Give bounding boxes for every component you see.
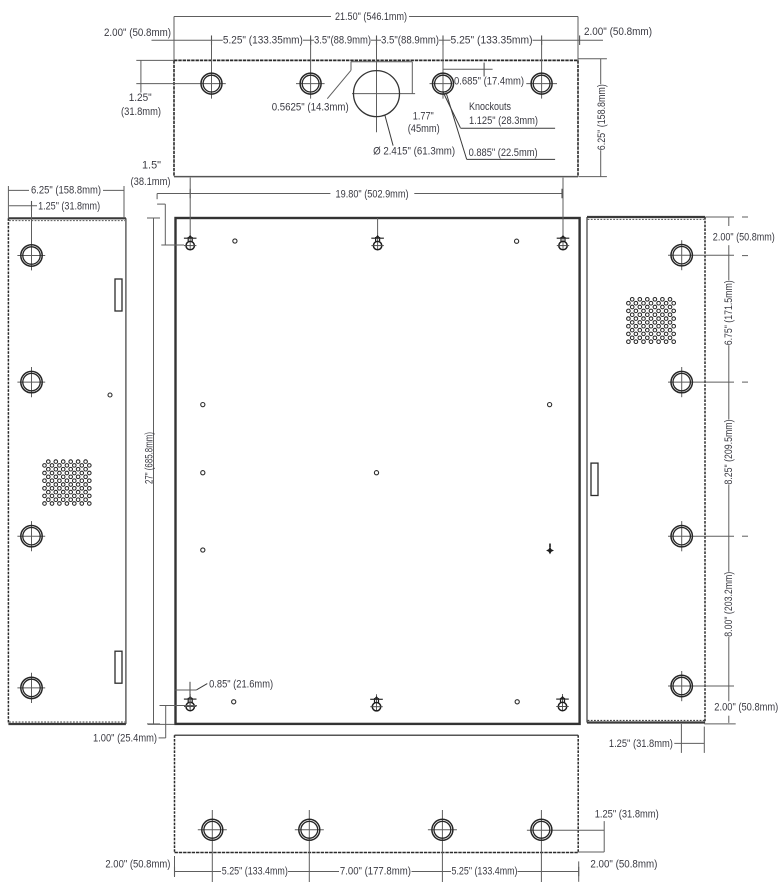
svg-text:5.25" (133.35mm): 5.25" (133.35mm) [451, 34, 533, 46]
svg-text:8.00" (203.2mm): 8.00" (203.2mm) [723, 572, 735, 637]
svg-text:5.25" (133.35mm): 5.25" (133.35mm) [223, 35, 303, 47]
svg-text:6.75" (171.5mm): 6.75" (171.5mm) [723, 280, 735, 345]
svg-text:(45mm): (45mm) [408, 123, 440, 135]
svg-text:0.5625" (14.3mm): 0.5625" (14.3mm) [272, 101, 349, 113]
svg-text:1.25" (31.8mm): 1.25" (31.8mm) [609, 738, 673, 750]
svg-text:7.00" (177.8mm): 7.00" (177.8mm) [340, 865, 411, 877]
svg-text:5.25" (133.4mm): 5.25" (133.4mm) [222, 865, 288, 877]
svg-text:0.85" (21.6mm): 0.85" (21.6mm) [209, 678, 273, 690]
svg-text:(31.8mm): (31.8mm) [121, 106, 161, 118]
svg-text:8.25" (209.5mm): 8.25" (209.5mm) [723, 420, 735, 485]
svg-text:6.25" (158.8mm): 6.25" (158.8mm) [31, 185, 101, 197]
svg-text:5.25" (133.4mm): 5.25" (133.4mm) [452, 865, 518, 877]
svg-text:3.5"(88.9mm): 3.5"(88.9mm) [381, 35, 439, 47]
svg-text:6.25" (158.8mm): 6.25" (158.8mm) [596, 84, 608, 150]
svg-text:3.5"(88.9mm): 3.5"(88.9mm) [314, 35, 371, 47]
svg-text:21.50" (546.1mm): 21.50" (546.1mm) [335, 11, 407, 23]
svg-text:1.25" (31.8mm): 1.25" (31.8mm) [38, 201, 100, 213]
svg-text:Knockouts: Knockouts [469, 101, 511, 113]
svg-text:1.125" (28.3mm): 1.125" (28.3mm) [469, 115, 538, 127]
svg-text:Ø 2.415" (61.3mm): Ø 2.415" (61.3mm) [373, 146, 455, 158]
svg-text:1.25": 1.25" [129, 92, 152, 104]
svg-text:2.00" (50.8mm): 2.00" (50.8mm) [713, 231, 775, 243]
svg-text:0.885" (22.5mm): 0.885" (22.5mm) [469, 147, 538, 159]
svg-text:2.00" (50.8mm): 2.00" (50.8mm) [714, 702, 778, 714]
svg-text:1.77": 1.77" [413, 111, 434, 123]
svg-text:(38.1mm): (38.1mm) [131, 176, 171, 188]
svg-text:1.5": 1.5" [142, 159, 161, 171]
svg-text:2.00" (50.8mm): 2.00" (50.8mm) [584, 26, 652, 38]
svg-text:2.00" (50.8mm): 2.00" (50.8mm) [590, 859, 657, 871]
svg-text:2.00" (50.8mm): 2.00" (50.8mm) [104, 27, 171, 39]
svg-text:1.00" (25.4mm): 1.00" (25.4mm) [93, 732, 157, 744]
svg-text:0.685" (17.4mm): 0.685" (17.4mm) [454, 76, 524, 88]
svg-text:1.25" (31.8mm): 1.25" (31.8mm) [595, 809, 659, 821]
svg-text:19.80" (502.9mm): 19.80" (502.9mm) [336, 188, 409, 200]
svg-text:2.00" (50.8mm): 2.00" (50.8mm) [105, 859, 170, 871]
svg-text:27" (685.8mm): 27" (685.8mm) [143, 432, 155, 484]
